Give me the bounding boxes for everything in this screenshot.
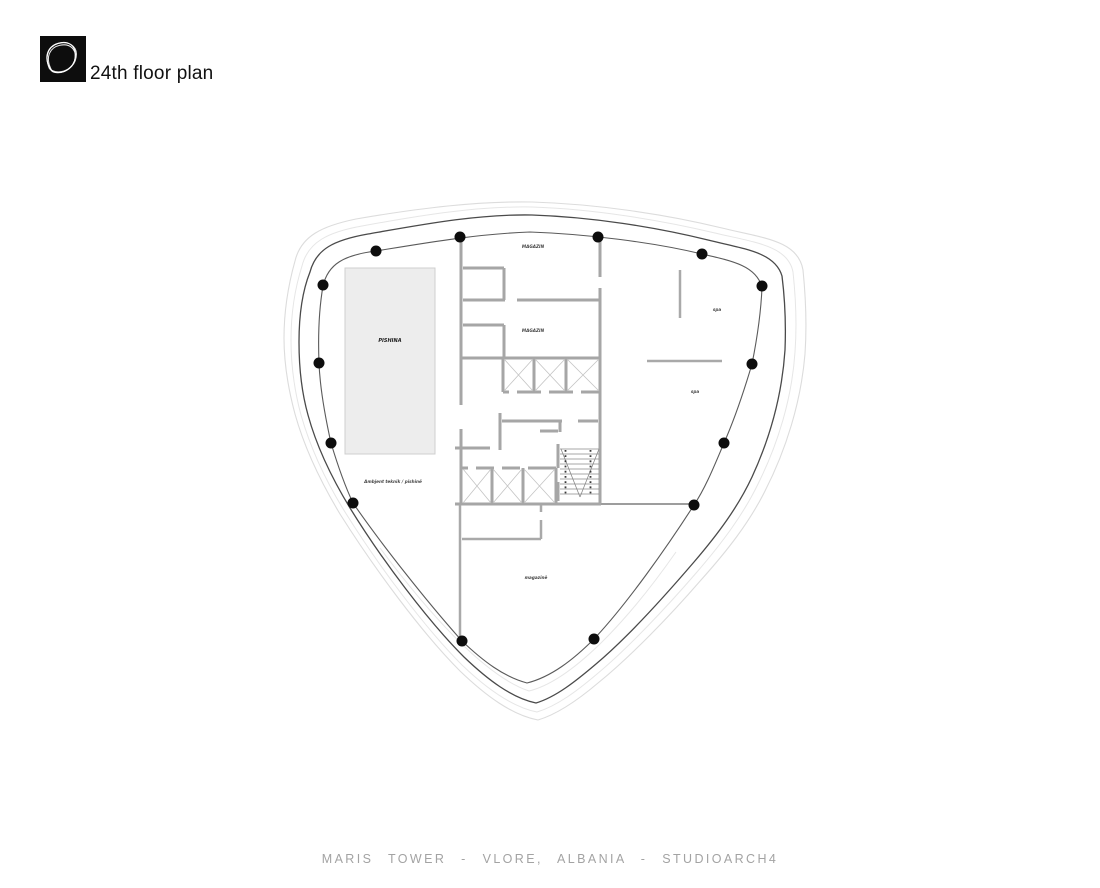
elevator-cross-lines: [463, 359, 599, 503]
column-dot: [697, 249, 708, 260]
room-label-storage-bottom: magazinë: [525, 575, 548, 580]
column-dot: [326, 438, 337, 449]
room-label-spa-lower: spa: [691, 389, 699, 394]
project-caption: MARIS TOWER - VLORE, ALBANIA - STUDIOARC…: [0, 852, 1100, 866]
core-walls: [455, 241, 601, 505]
column-dot: [589, 634, 600, 645]
elevator-shafts: [463, 359, 599, 503]
column-dot: [318, 280, 329, 291]
stair-direction-lines: [561, 449, 599, 497]
column-dot: [689, 500, 700, 511]
room-label-magazin-upper: MAGAZIN: [522, 244, 545, 249]
column-dot: [348, 498, 359, 509]
room-label-magazin-lower: MAGAZIN: [522, 328, 545, 333]
room-label-technical: Ambjent teknik / pishinë: [363, 479, 422, 484]
room-label-spa-upper: spa: [713, 307, 721, 312]
stair-core: [560, 449, 599, 497]
column-dot: [719, 438, 730, 449]
column-dot: [757, 281, 768, 292]
column-dot: [457, 636, 468, 647]
canvas: 24th floor plan PISHINA: [0, 0, 1100, 888]
column-dot: [593, 232, 604, 243]
column-dot: [455, 232, 466, 243]
column-dot: [747, 359, 758, 370]
facade-bottom-accent-line: [380, 548, 676, 691]
pool-area: PISHINA: [345, 268, 435, 454]
column-dot: [371, 246, 382, 257]
pool-label: PISHINA: [378, 338, 401, 344]
floor-plan-drawing: PISHINA: [0, 0, 1100, 888]
pool-rect: [345, 268, 435, 454]
column-dot: [314, 358, 325, 369]
